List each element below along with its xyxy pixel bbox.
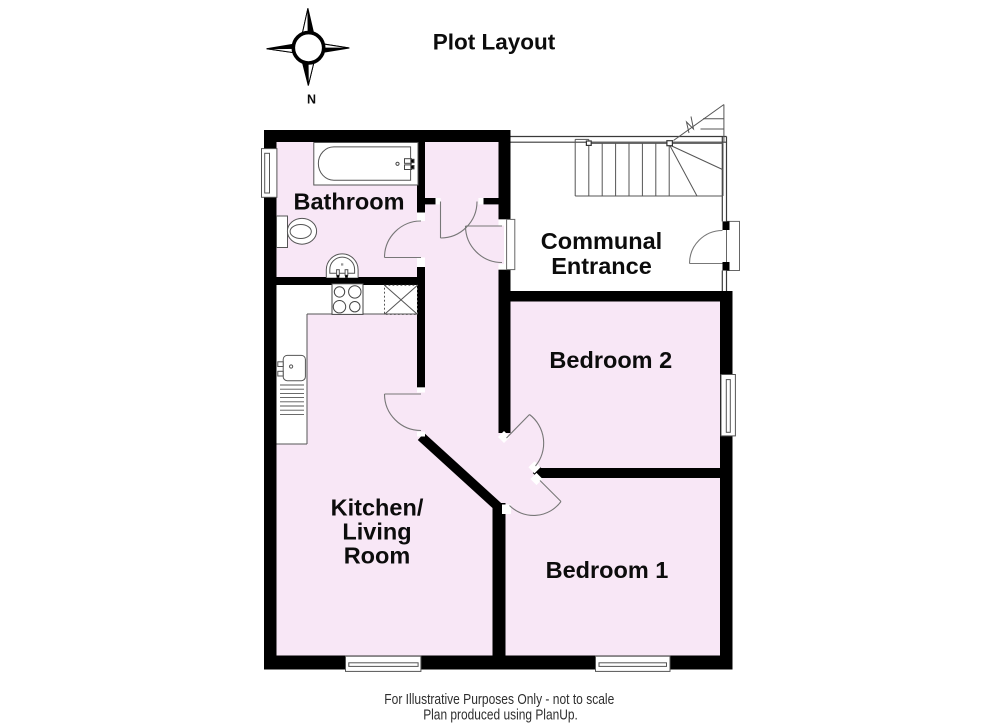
- svg-text:For Illustrative Purposes Only: For Illustrative Purposes Only - not to …: [384, 691, 614, 708]
- svg-text:Bathroom: Bathroom: [294, 189, 405, 215]
- svg-text:Plan produced using PlanUp.: Plan produced using PlanUp.: [423, 707, 578, 724]
- svg-text:N: N: [307, 93, 316, 107]
- svg-text:Living: Living: [342, 519, 411, 545]
- svg-text:Kitchen/: Kitchen/: [331, 495, 424, 521]
- svg-text:Communal: Communal: [541, 228, 662, 254]
- svg-text:Entrance: Entrance: [551, 253, 652, 279]
- svg-text:Bedroom 1: Bedroom 1: [546, 557, 669, 583]
- svg-text:Plot Layout: Plot Layout: [433, 30, 556, 55]
- svg-text:Room: Room: [344, 542, 411, 568]
- svg-text:Bedroom 2: Bedroom 2: [549, 347, 672, 373]
